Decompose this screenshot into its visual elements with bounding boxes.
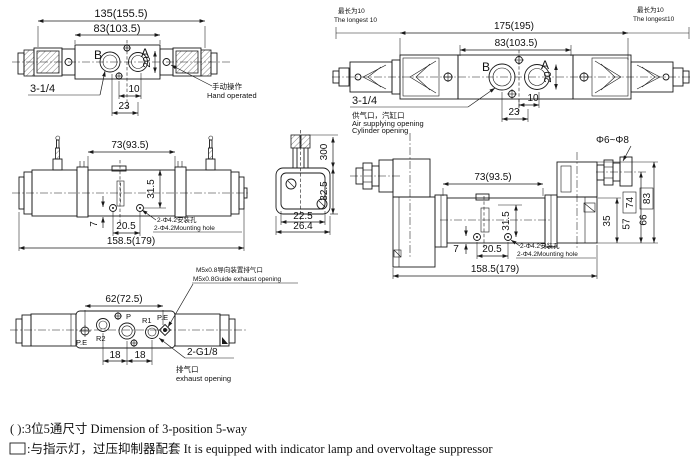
valve-dimension-drawing: 135(155.5) 83(103.5) B A 20 10 23 3-1/4 … (0, 0, 698, 472)
port-a-label: A (541, 58, 549, 72)
dim-body-label: 73(93.5) (111, 140, 148, 151)
dim-height-label: 31.5 (146, 179, 157, 199)
longest-note-right-en: The longest10 (633, 16, 675, 23)
mount-note-cn: 2-Φ4.2安装孔 (157, 215, 197, 224)
dim-18b-label: 18 (134, 350, 146, 361)
legend: ( ):3位5通尺寸 Dimension of 3-position 5-way… (10, 421, 493, 456)
dim-port-height-label: 20 (543, 71, 554, 83)
din-connector (393, 159, 430, 197)
dim-offset-label: 7 (89, 221, 100, 227)
dim-port-height-label: 20 (142, 56, 153, 68)
bottom-view: P.E R2 P R1 P.E 62(72.5) 18 18 2-G1/8 排气… (10, 265, 298, 383)
guide-exhaust-note-en: M5x0.8Guide exhaust opening (193, 276, 282, 283)
front-view-wire: 73(93.5) 31.5 7 20.5 158.5(179) 2-Φ4.2安装… (12, 136, 250, 251)
port-r2 (97, 319, 110, 332)
cable-diameter-label: Φ6~Φ8 (596, 135, 629, 146)
exhaust-note-en: exhaust opening (176, 374, 231, 383)
dim-10-label: 10 (128, 84, 140, 95)
hand-operated-note-en: Hand operated (207, 91, 257, 100)
dim-h1-label: 57 (622, 218, 633, 230)
dim-width-label: 26.4 (293, 221, 313, 232)
port-pe-left-label: P.E (76, 338, 87, 347)
dim-body-label: 73(93.5) (474, 172, 511, 183)
legend-box-symbol (10, 443, 25, 454)
dim-height-label: 32.5 (319, 181, 330, 201)
dim-23-label: 23 (508, 107, 520, 118)
dim-body-label: 83(103.5) (495, 38, 538, 49)
dim-hole-span-label: 20.5 (482, 244, 502, 255)
port-r1-label: R1 (142, 316, 152, 325)
dim-overall-label: 158.5(179) (107, 236, 155, 247)
front-view-plug: Φ6~Φ8 73(93.5) 31.5 7 20.5 35 57 74 66 8… (350, 133, 658, 279)
port-p-label: P (126, 312, 131, 321)
port-p (119, 323, 135, 339)
exhaust-thread-label: 2-G1/8 (187, 347, 218, 358)
dim-overall-label: 175(195) (494, 21, 534, 32)
guide-exhaust-note-cn: M5x0.8导向装置排气口 (196, 265, 263, 274)
top-view-standard: 135(155.5) 83(103.5) B A 20 10 23 3-1/4 … (12, 8, 257, 116)
dim-body-label: 83(103.5) (93, 23, 140, 35)
longest-note-right-cn: 最长为10 (637, 5, 664, 14)
port-r1 (146, 326, 159, 339)
dim-10-label: 10 (527, 93, 539, 104)
dim-offset-label: 7 (453, 244, 459, 255)
thread-size-label: 3-1/4 (352, 95, 377, 107)
hand-operated-note-cn: 手动操作 (212, 81, 242, 91)
port-pe-right-label: P.E (157, 313, 168, 322)
port-b-label: B (482, 60, 490, 74)
legend-box-note: :与指示灯，过压抑制器配套 It is equipped with indica… (27, 441, 493, 456)
side-view: 300 32.5 22.5 26.4 (276, 130, 338, 235)
dim-overall-label: 158.5(179) (471, 264, 519, 275)
dim-18a-label: 18 (109, 350, 121, 361)
dim-hole-span-label: 20.5 (116, 221, 136, 232)
dim-sol-height-label: 35 (602, 215, 613, 227)
mount-note-en: 2-Φ4.2Mounting hole (154, 225, 215, 232)
port-r2-label: R2 (96, 334, 106, 343)
mount-note-cn: 2-Φ4.2安装孔 (520, 241, 560, 250)
mount-note-en: 2-Φ4.2Mounting hole (517, 251, 578, 258)
exhaust-note-cn: 排气口 (176, 364, 199, 374)
dim-h2-boxed-label: 83 (642, 193, 653, 205)
dim-height-label: 31.5 (501, 211, 512, 231)
dim-23-label: 23 (118, 101, 130, 112)
dim-wire-length-label: 300 (319, 143, 330, 160)
longest-note-left-cn: 最长为10 (338, 6, 365, 15)
supply-note-en2: Cylinder opening (352, 126, 408, 135)
dim-overall-label: 135(155.5) (94, 8, 147, 20)
legend-paren-note: ( ):3位5通尺寸 Dimension of 3-position 5-way (10, 421, 248, 436)
longest-note-left-en: The longest 10 (334, 17, 377, 24)
dim-span-label: 62(72.5) (105, 294, 142, 305)
dim-h2-label: 66 (639, 214, 650, 226)
dim-h1-boxed-label: 74 (625, 197, 636, 209)
port-b-label: B (94, 48, 102, 62)
top-view-plug: B A 175(195) 最长为10 The longest 10 最长为10 … (332, 5, 692, 135)
thread-size-label: 3-1/4 (30, 83, 55, 95)
